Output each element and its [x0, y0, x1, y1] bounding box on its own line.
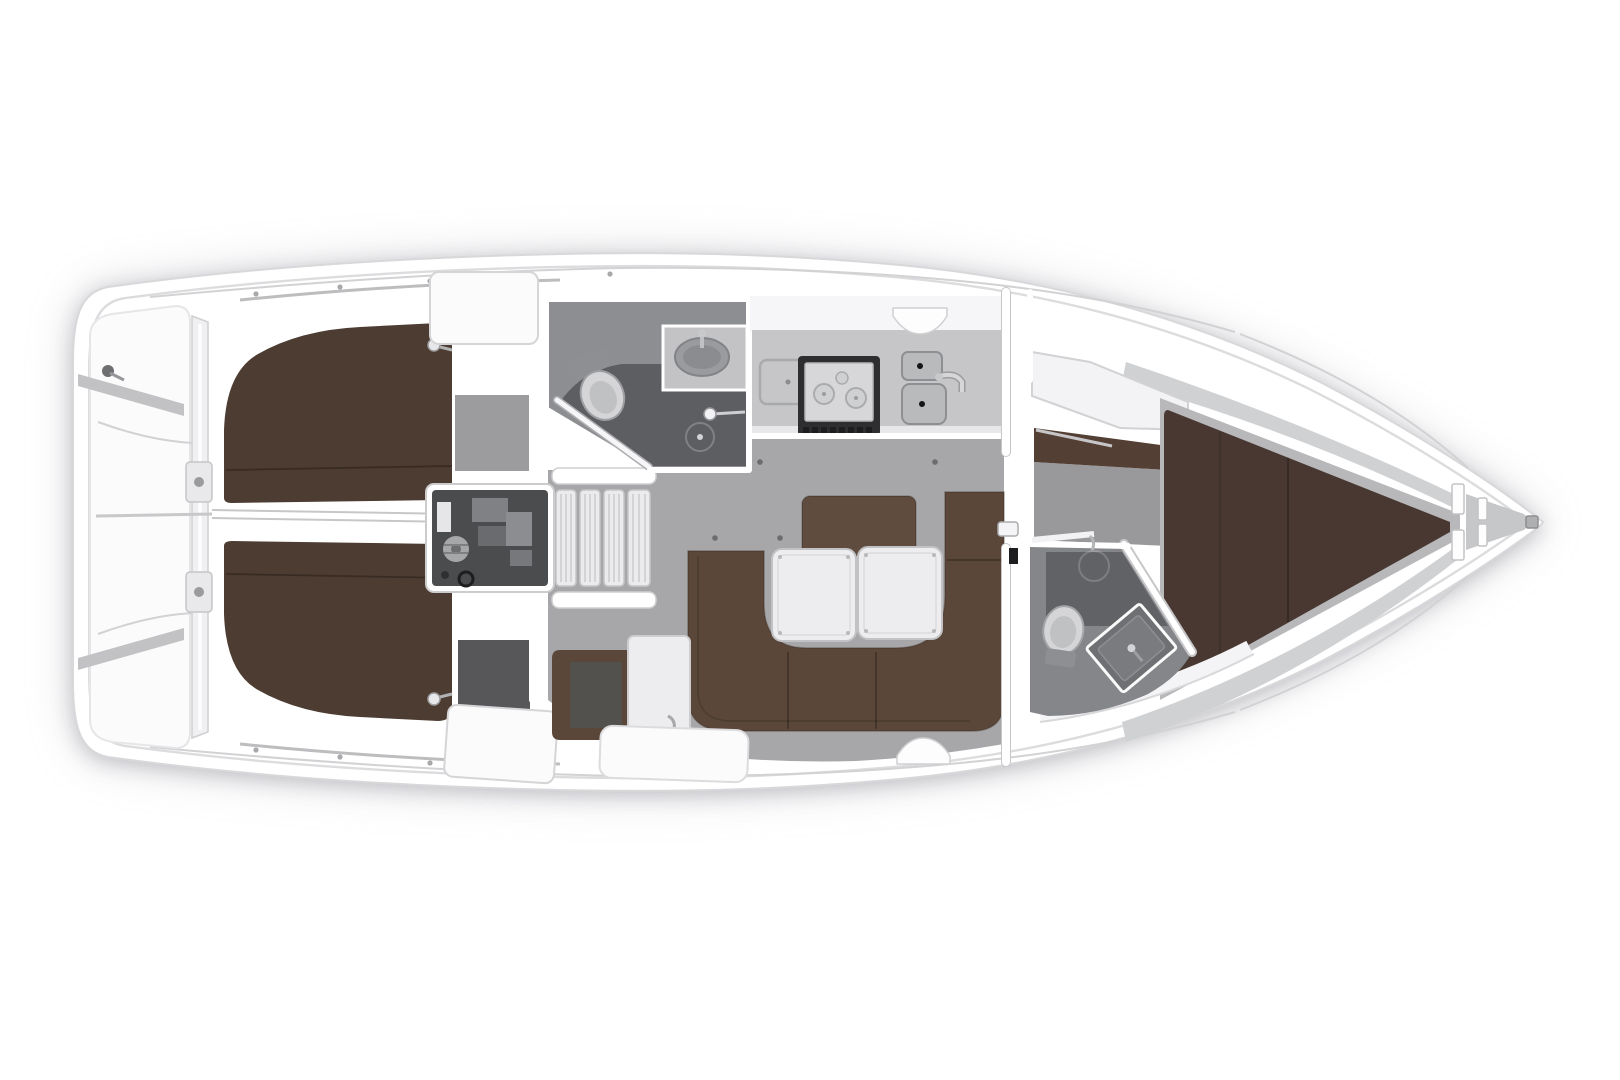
stern-platform	[78, 306, 212, 748]
door-latch	[998, 522, 1018, 536]
salon-tables	[772, 547, 942, 641]
aft-head-vanity	[663, 326, 747, 390]
wardrobe-starboard	[444, 704, 559, 783]
locker-knob	[786, 380, 791, 385]
stove	[798, 356, 880, 436]
stairs-cheek-top	[552, 468, 656, 484]
door-slot	[1009, 548, 1018, 564]
aft-cabin-divider	[212, 514, 456, 518]
aft-cabin-stbd-floor	[458, 640, 530, 710]
hull-bench-bottom	[599, 725, 749, 782]
galley-upper-cabinets	[750, 296, 1008, 332]
engine-compartment	[426, 484, 554, 592]
shower-drain-center	[697, 434, 703, 440]
aft-cabin-port-floor	[455, 395, 531, 471]
bow-fitting	[1526, 516, 1538, 528]
chart-table	[628, 636, 690, 740]
floor-plan-svg	[0, 0, 1620, 1080]
forward-head-top-wall	[1030, 544, 1128, 546]
nav-seat-well	[570, 662, 622, 728]
forward-corridor-floor	[1034, 462, 1168, 546]
salon-table-left	[772, 549, 856, 641]
yacht-floor-plan	[0, 0, 1620, 1080]
salon-table-right	[858, 547, 942, 639]
wardrobe-port	[430, 272, 538, 344]
galley	[750, 296, 1008, 436]
burner-small	[836, 372, 848, 384]
nav-seat	[552, 636, 690, 740]
steering-rod	[96, 514, 212, 516]
stairs-cheek-bottom	[552, 592, 656, 608]
